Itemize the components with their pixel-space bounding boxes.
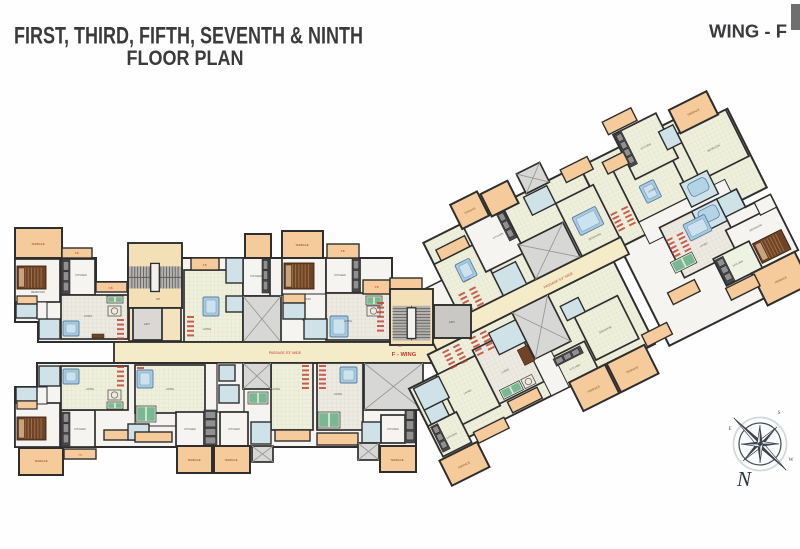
svg-text:BEDROOM: BEDROOM: [31, 430, 44, 434]
svg-text:W: W: [788, 457, 794, 463]
svg-text:LIVING: LIVING: [203, 327, 212, 331]
svg-text:KITCHEN: KITCHEN: [74, 427, 86, 431]
svg-text:LIVING: LIVING: [86, 387, 95, 391]
svg-text:S: S: [777, 410, 780, 416]
svg-text:KITCHEN: KITCHEN: [75, 273, 87, 277]
svg-text:TERRACE: TERRACE: [224, 458, 237, 462]
svg-text:LIVING: LIVING: [166, 387, 175, 391]
svg-text:TERRACE: TERRACE: [390, 458, 403, 462]
svg-text:N: N: [736, 467, 752, 491]
svg-text:TERRACE: TERRACE: [295, 243, 308, 247]
svg-text:KITCHEN: KITCHEN: [228, 427, 240, 431]
svg-text:PASSAGE 5'3" WIDE: PASSAGE 5'3" WIDE: [269, 351, 302, 355]
svg-text:TERRACE: TERRACE: [34, 459, 47, 463]
svg-text:KITCHEN: KITCHEN: [250, 274, 262, 278]
svg-text:UP: UP: [156, 297, 160, 301]
svg-text:LIVING: LIVING: [84, 314, 93, 318]
svg-text:7.5: 7.5: [78, 453, 82, 457]
svg-text:FLOOR PLAN: FLOOR PLAN: [127, 47, 244, 70]
svg-text:WING - F: WING - F: [709, 22, 787, 42]
svg-text:UP: UP: [398, 344, 402, 348]
svg-text:KITCHEN: KITCHEN: [184, 427, 196, 431]
svg-text:BEDROOM: BEDROOM: [31, 290, 44, 294]
svg-text:LIFT: LIFT: [144, 322, 150, 326]
svg-text:F.B.: F.B.: [109, 286, 114, 290]
svg-text:F.B.: F.B.: [341, 249, 346, 253]
svg-text:LIVING: LIVING: [334, 392, 343, 396]
svg-text:LIVING: LIVING: [344, 319, 353, 323]
svg-text:LIVING: LIVING: [272, 387, 281, 391]
svg-text:TERRACE: TERRACE: [31, 242, 44, 246]
svg-text:FIRST, THIRD, FIFTH, SEVENTH &: FIRST, THIRD, FIFTH, SEVENTH & NINTH: [14, 23, 363, 50]
svg-text:TERRACE: TERRACE: [187, 458, 200, 462]
svg-text:F.B.: F.B.: [75, 251, 80, 255]
svg-text:KITCHEN: KITCHEN: [387, 427, 399, 431]
svg-text:F.B.: F.B.: [203, 263, 208, 267]
svg-text:KITCHEN: KITCHEN: [334, 273, 346, 277]
svg-text:F - WING: F - WING: [392, 352, 417, 358]
svg-text:F.B.: F.B.: [375, 285, 380, 289]
svg-text:LIFT: LIFT: [449, 320, 455, 324]
